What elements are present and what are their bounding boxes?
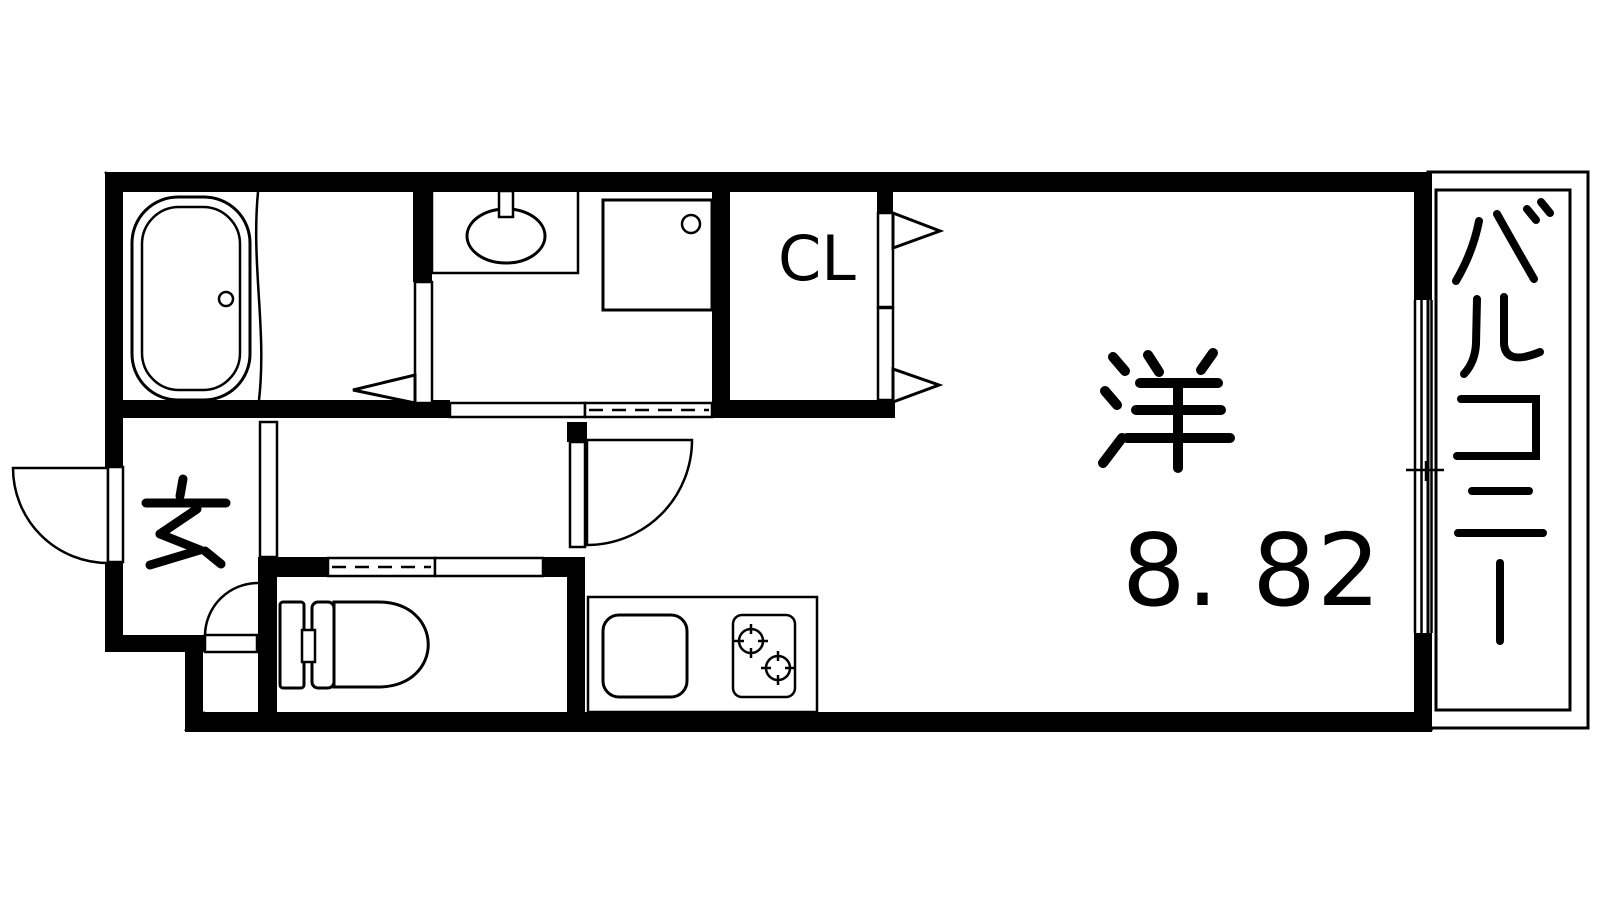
wall-toilet-top-left <box>258 557 328 577</box>
toilet-icon <box>280 602 428 688</box>
door-arrow-icon <box>353 375 415 403</box>
floor-plan-drawing <box>0 0 1600 900</box>
sliding-door-washroom-icon <box>450 403 712 417</box>
wall-door-stub <box>567 422 587 442</box>
washing-machine-pan-icon <box>603 200 712 310</box>
bifold-door-arrow-icon <box>893 213 940 248</box>
balcony-outline <box>1428 172 1588 728</box>
wall-washroom-closet <box>712 192 730 400</box>
washbasin-icon <box>432 190 578 273</box>
floor-plan: CL 8. 82 洋 玄 バルコニー <box>0 0 1600 900</box>
katakana-balcony-glyph <box>1456 202 1550 641</box>
kitchen-sink-icon <box>603 615 687 697</box>
wall-top <box>105 172 1432 192</box>
storage-door-swing-icon <box>205 583 258 652</box>
entry-door-swing-icon <box>13 467 123 563</box>
kanji-western-room-glyph <box>1103 353 1230 468</box>
wall-entrance-bottom <box>105 635 205 652</box>
wall-midband-left <box>105 400 450 418</box>
room-door-swing-icon <box>570 440 692 547</box>
wall-kitchen-side <box>567 577 585 712</box>
kitchen-counter <box>588 597 817 712</box>
balcony-outer-wall <box>1428 172 1588 728</box>
bifold-door-arrow-icon <box>893 369 939 402</box>
wall-left-upper <box>105 192 123 467</box>
wall-midband-right <box>712 400 895 418</box>
closet-bifold-doors <box>878 213 940 402</box>
kanji-entrance-glyph <box>146 479 226 565</box>
wall-toilet-left <box>258 577 277 712</box>
entrance-step-partition <box>260 422 277 557</box>
window-icon <box>1406 300 1444 633</box>
bathtub-icon <box>132 192 261 400</box>
sliding-door-toilet-icon <box>328 558 543 576</box>
wall-bottom <box>185 712 1432 732</box>
gas-stove-icon <box>733 615 795 697</box>
wall-toilet-top-right <box>543 557 585 577</box>
bathroom-door-icon <box>353 282 432 403</box>
wall-bath-washroom <box>413 192 432 282</box>
